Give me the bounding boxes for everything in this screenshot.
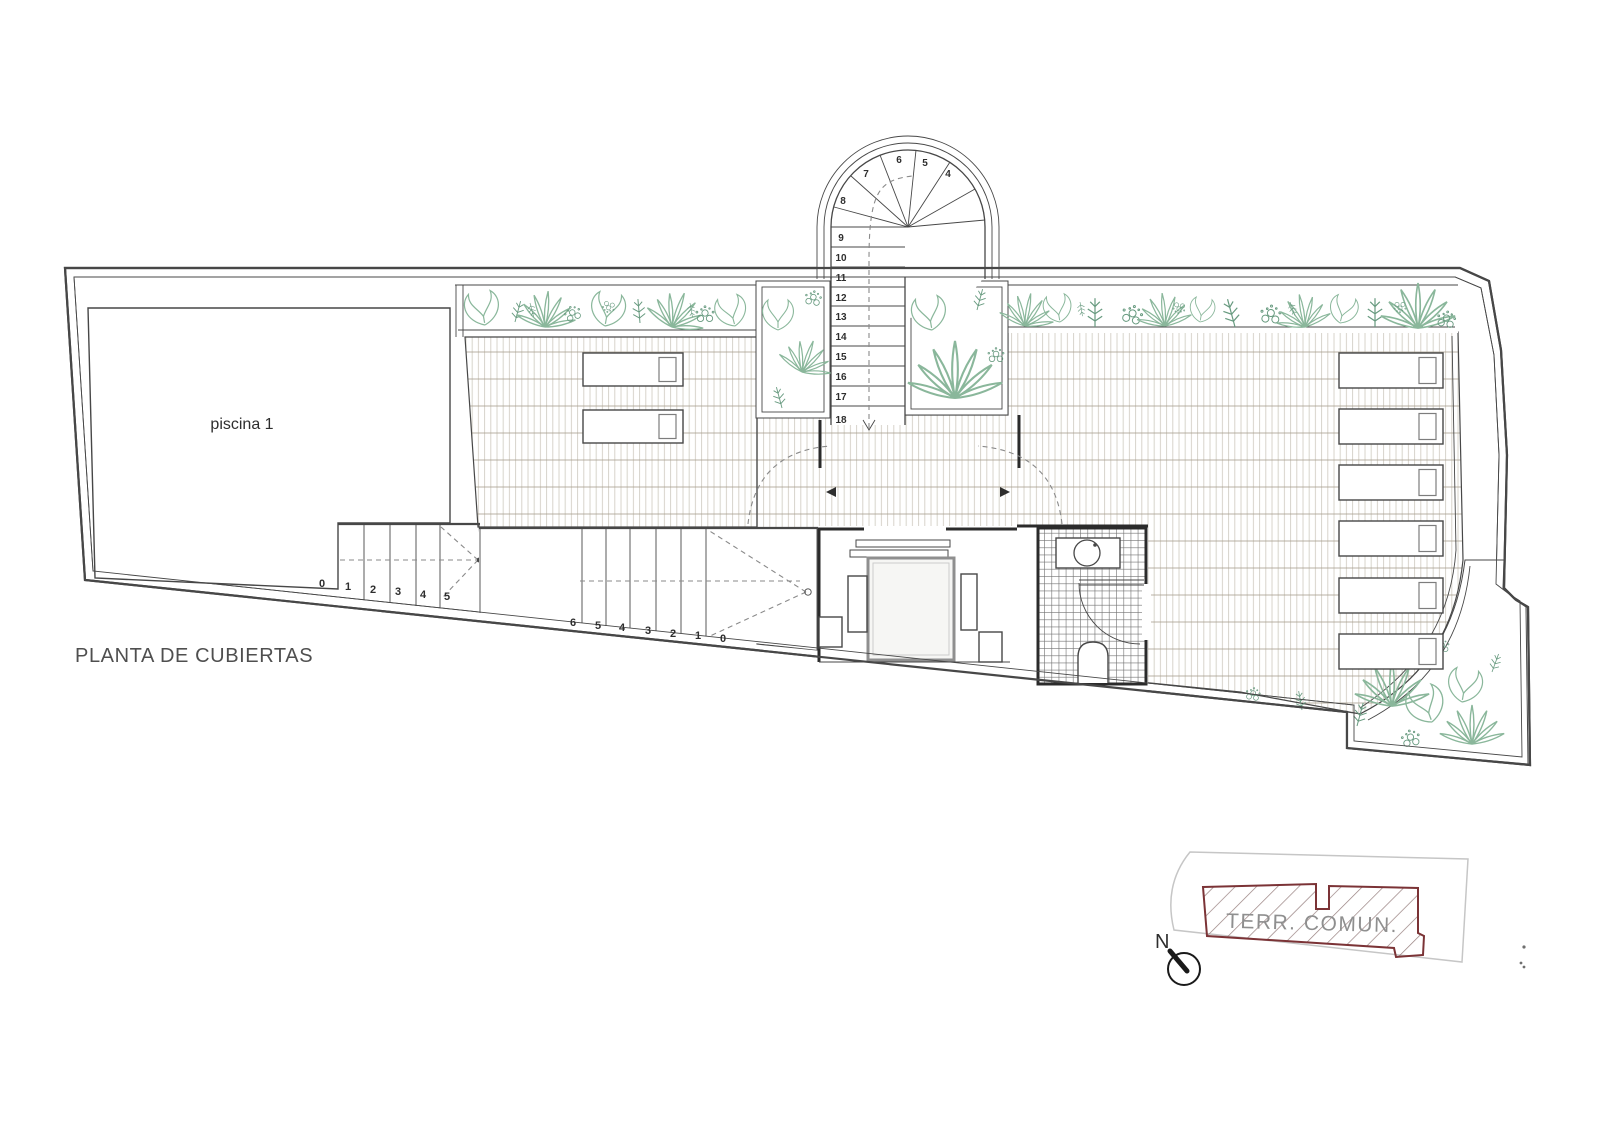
north-arrow: N <box>1155 931 1200 985</box>
step-number: 8 <box>840 196 846 207</box>
sun-lounger <box>1339 521 1443 556</box>
step-number: 4 <box>619 622 626 634</box>
sun-lounger <box>1339 465 1443 500</box>
step-number: 16 <box>835 372 847 383</box>
roof-box <box>819 617 842 647</box>
step-number: 11 <box>836 273 847 284</box>
floor-plan-canvas: piscina 1 <box>0 0 1600 1131</box>
lounger-pillow <box>659 358 676 382</box>
step-number: 9 <box>838 233 844 244</box>
north-label: N <box>1155 931 1169 953</box>
lounger-pillow <box>1419 583 1436 609</box>
roof-bench <box>961 574 977 630</box>
skylight-step <box>856 540 950 547</box>
keyplan: TERR. COMUN. N <box>1155 852 1526 985</box>
page: piscina 1 <box>0 0 1600 1131</box>
step-number: 18 <box>835 415 847 426</box>
step-number: 15 <box>835 352 847 363</box>
step-number: 2 <box>670 628 676 640</box>
bathroom-vanity <box>1056 538 1120 568</box>
pool-stair <box>338 524 483 608</box>
lounger-pillow <box>659 415 676 439</box>
lounger-pillow <box>1419 414 1436 440</box>
sun-lounger <box>1339 634 1443 669</box>
sun-lounger <box>583 410 683 443</box>
step-number: 14 <box>835 332 847 343</box>
step-number: 2 <box>370 584 376 596</box>
drawing-title: PLANTA DE CUBIERTAS <box>75 645 313 667</box>
sun-lounger <box>1339 409 1443 444</box>
bathroom <box>1038 528 1151 684</box>
skylight <box>868 558 954 660</box>
step-number: 4 <box>420 589 427 601</box>
lounger-pillow <box>1419 358 1436 384</box>
skylight-step <box>850 550 948 557</box>
step-number: 5 <box>922 158 928 169</box>
step-number: 6 <box>896 155 902 166</box>
lounger-pillow <box>1419 639 1436 665</box>
step-number: 4 <box>945 169 951 180</box>
step-number: 13 <box>835 312 847 323</box>
roof-bench <box>848 576 867 632</box>
step-number: 7 <box>863 169 869 180</box>
step-number: 12 <box>835 293 847 304</box>
step-number: 5 <box>595 620 601 632</box>
pool-label: piscina 1 <box>210 416 273 433</box>
step-number: 0 <box>319 578 325 590</box>
step-number: 0 <box>720 633 726 645</box>
pool: piscina 1 <box>88 308 450 589</box>
roof-box <box>979 632 1002 662</box>
step-number: 1 <box>695 630 701 642</box>
step-number: 6 <box>570 617 576 629</box>
step-number: 10 <box>835 253 847 264</box>
step-number: 17 <box>835 392 847 403</box>
lounger-pillow <box>1419 470 1436 496</box>
sun-lounger <box>1339 578 1443 613</box>
lounger-pillow <box>1419 526 1436 552</box>
step-number: 5 <box>444 591 450 603</box>
step-number: 3 <box>395 586 401 598</box>
step-number: 1 <box>345 581 351 593</box>
sun-lounger <box>583 353 683 386</box>
step-number: 3 <box>645 625 651 637</box>
sun-lounger <box>1339 353 1443 388</box>
plot-marks <box>1520 945 1526 968</box>
keyplan-area-label: TERR. COMUN. <box>1226 910 1399 937</box>
